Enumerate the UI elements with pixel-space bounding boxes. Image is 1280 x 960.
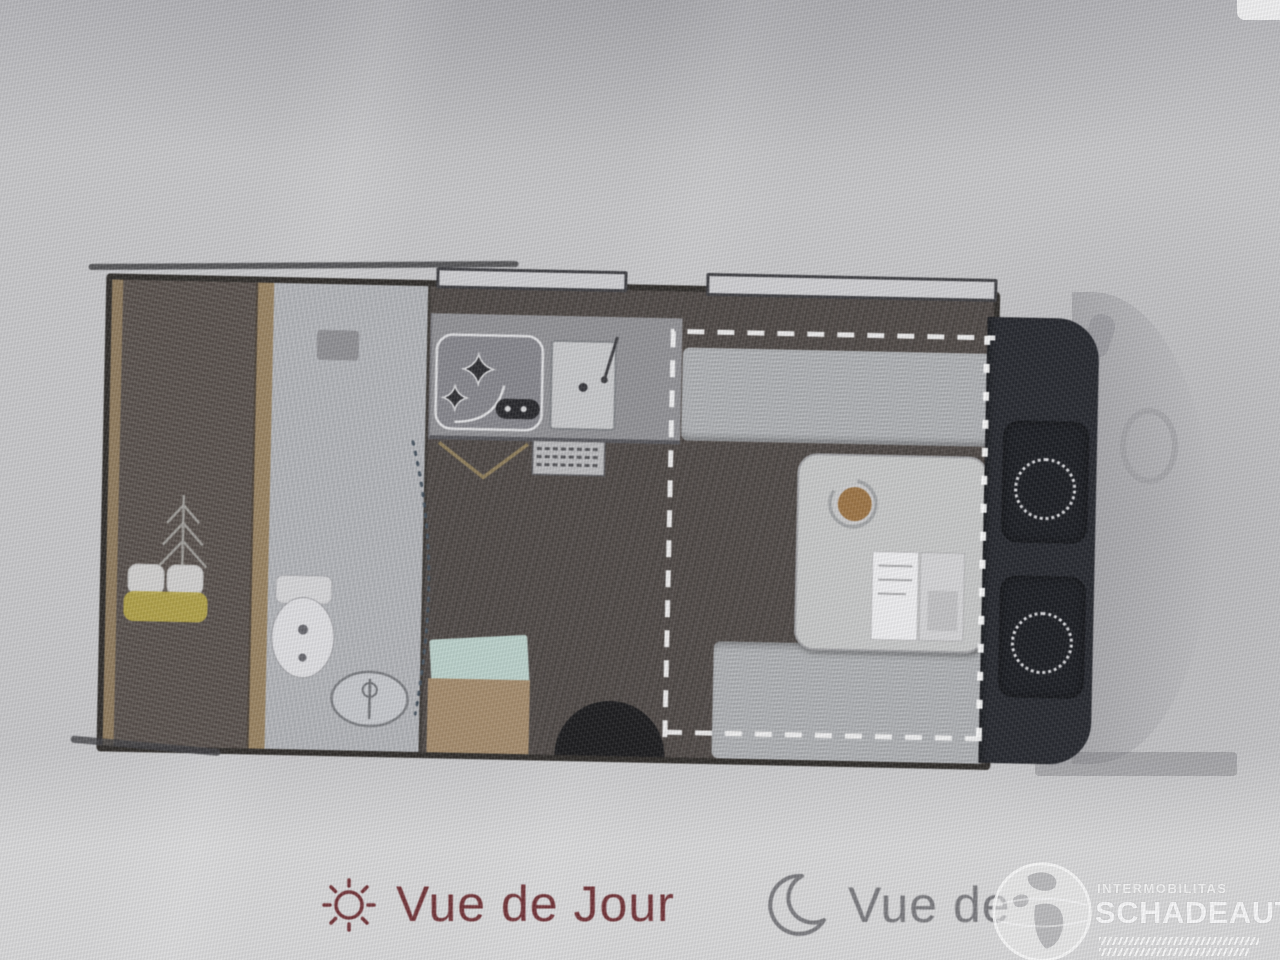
- kitchen-sink: [550, 337, 617, 430]
- shower-door-arc: [407, 442, 431, 714]
- floorplan-detail-graphics: [96, 273, 1106, 772]
- globe-icon: [989, 859, 1095, 960]
- site-watermark: INTERMOBILITAS SCHADEAUTOS.NL: [985, 853, 1280, 960]
- bathroom-shelf: [317, 330, 360, 361]
- screen-photo-canvas: Vue de Jour Vue de INTERMOBILITAS SCHADE…: [0, 0, 1280, 960]
- sun-icon: [318, 872, 380, 936]
- photo-corner-glare: [1237, 0, 1280, 20]
- steering-wheel-ghost: [1120, 408, 1178, 484]
- camper-floorplan: [96, 273, 1106, 772]
- entry-mats: [426, 633, 530, 755]
- two-burner-hob: [435, 334, 543, 430]
- watermark-hatch-row: [1099, 937, 1259, 945]
- floor-v-marking: [438, 442, 528, 478]
- vent-grille: [532, 440, 605, 476]
- table-papers: [871, 551, 965, 641]
- entry-step: [554, 700, 665, 757]
- drop-down-bed-outline: [665, 331, 995, 744]
- wash-basin: [331, 671, 408, 727]
- day-view-toggle[interactable]: Vue de Jour: [318, 872, 675, 936]
- watermark-hatch-row: [1099, 948, 1249, 956]
- day-view-label: Vue de Jour: [396, 875, 675, 933]
- moon-icon: [758, 864, 832, 946]
- night-view-toggle[interactable]: Vue de: [758, 864, 1011, 946]
- toilet: [271, 575, 335, 678]
- watermark-line1: INTERMOBILITAS: [1097, 881, 1228, 896]
- bed-pillows: [123, 564, 208, 623]
- watermark-line2: SCHADEAUTOS.NL: [1095, 895, 1280, 931]
- plant-decor: [158, 495, 207, 568]
- table-chair-arc: [829, 481, 876, 528]
